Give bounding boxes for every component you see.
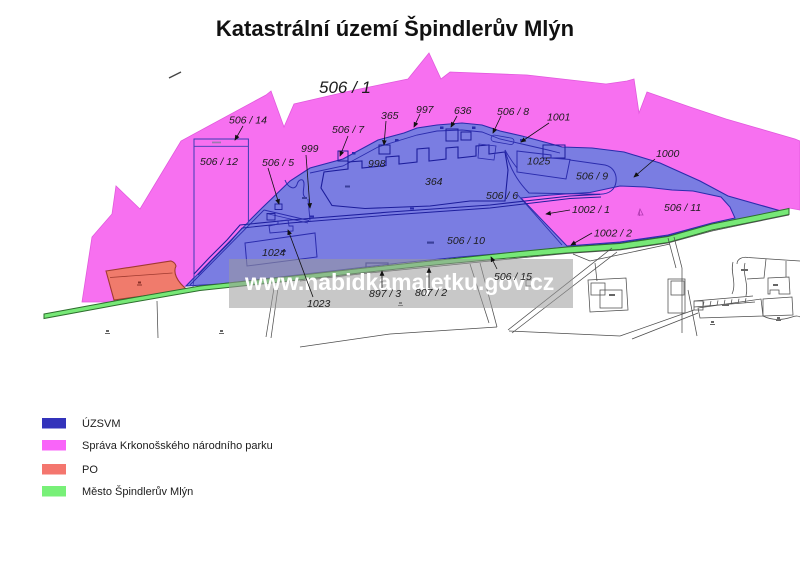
svg-text:506 / 14: 506 / 14 [229,115,267,127]
svg-text:Město Špindlerův Mlýn: Město Špindlerův Mlýn [82,485,193,498]
svg-text:999: 999 [301,143,319,155]
svg-text:506 / 9: 506 / 9 [576,171,608,183]
svg-text:998: 998 [368,158,386,170]
svg-text:897 / 3: 897 / 3 [369,288,401,300]
svg-text:Správa Krkonošského národního: Správa Krkonošského národního parku [82,440,273,452]
svg-text:1000: 1000 [656,148,680,160]
svg-text:1001: 1001 [547,112,570,124]
svg-text:1002 / 2: 1002 / 2 [594,228,632,240]
svg-text:1023: 1023 [307,298,331,310]
svg-text:506 / 5: 506 / 5 [262,157,294,169]
svg-text:Katastrální území Špindlerův M: Katastrální území Špindlerův Mlýn [216,16,574,41]
svg-text:ÚZSVM: ÚZSVM [82,417,121,430]
svg-text:506 / 11: 506 / 11 [664,202,701,214]
svg-text:1002 / 1: 1002 / 1 [572,204,610,216]
svg-text:807 / 2: 807 / 2 [415,287,447,299]
svg-text:1025: 1025 [527,156,551,168]
svg-text:365: 365 [381,110,399,122]
svg-text:1024: 1024 [262,247,286,259]
svg-text:506 / 1: 506 / 1 [319,78,371,97]
svg-text:PO: PO [82,464,98,476]
svg-text:506 / 6: 506 / 6 [486,190,518,202]
svg-text:506 / 8: 506 / 8 [497,106,529,118]
svg-text:364: 364 [425,176,443,188]
svg-text:506 / 12: 506 / 12 [200,156,238,168]
svg-text:506 / 15: 506 / 15 [494,271,532,283]
svg-text:636: 636 [454,105,472,117]
svg-text:506 / 7: 506 / 7 [332,124,365,136]
svg-text:506 / 10: 506 / 10 [447,235,485,247]
svg-text:997: 997 [416,104,435,116]
